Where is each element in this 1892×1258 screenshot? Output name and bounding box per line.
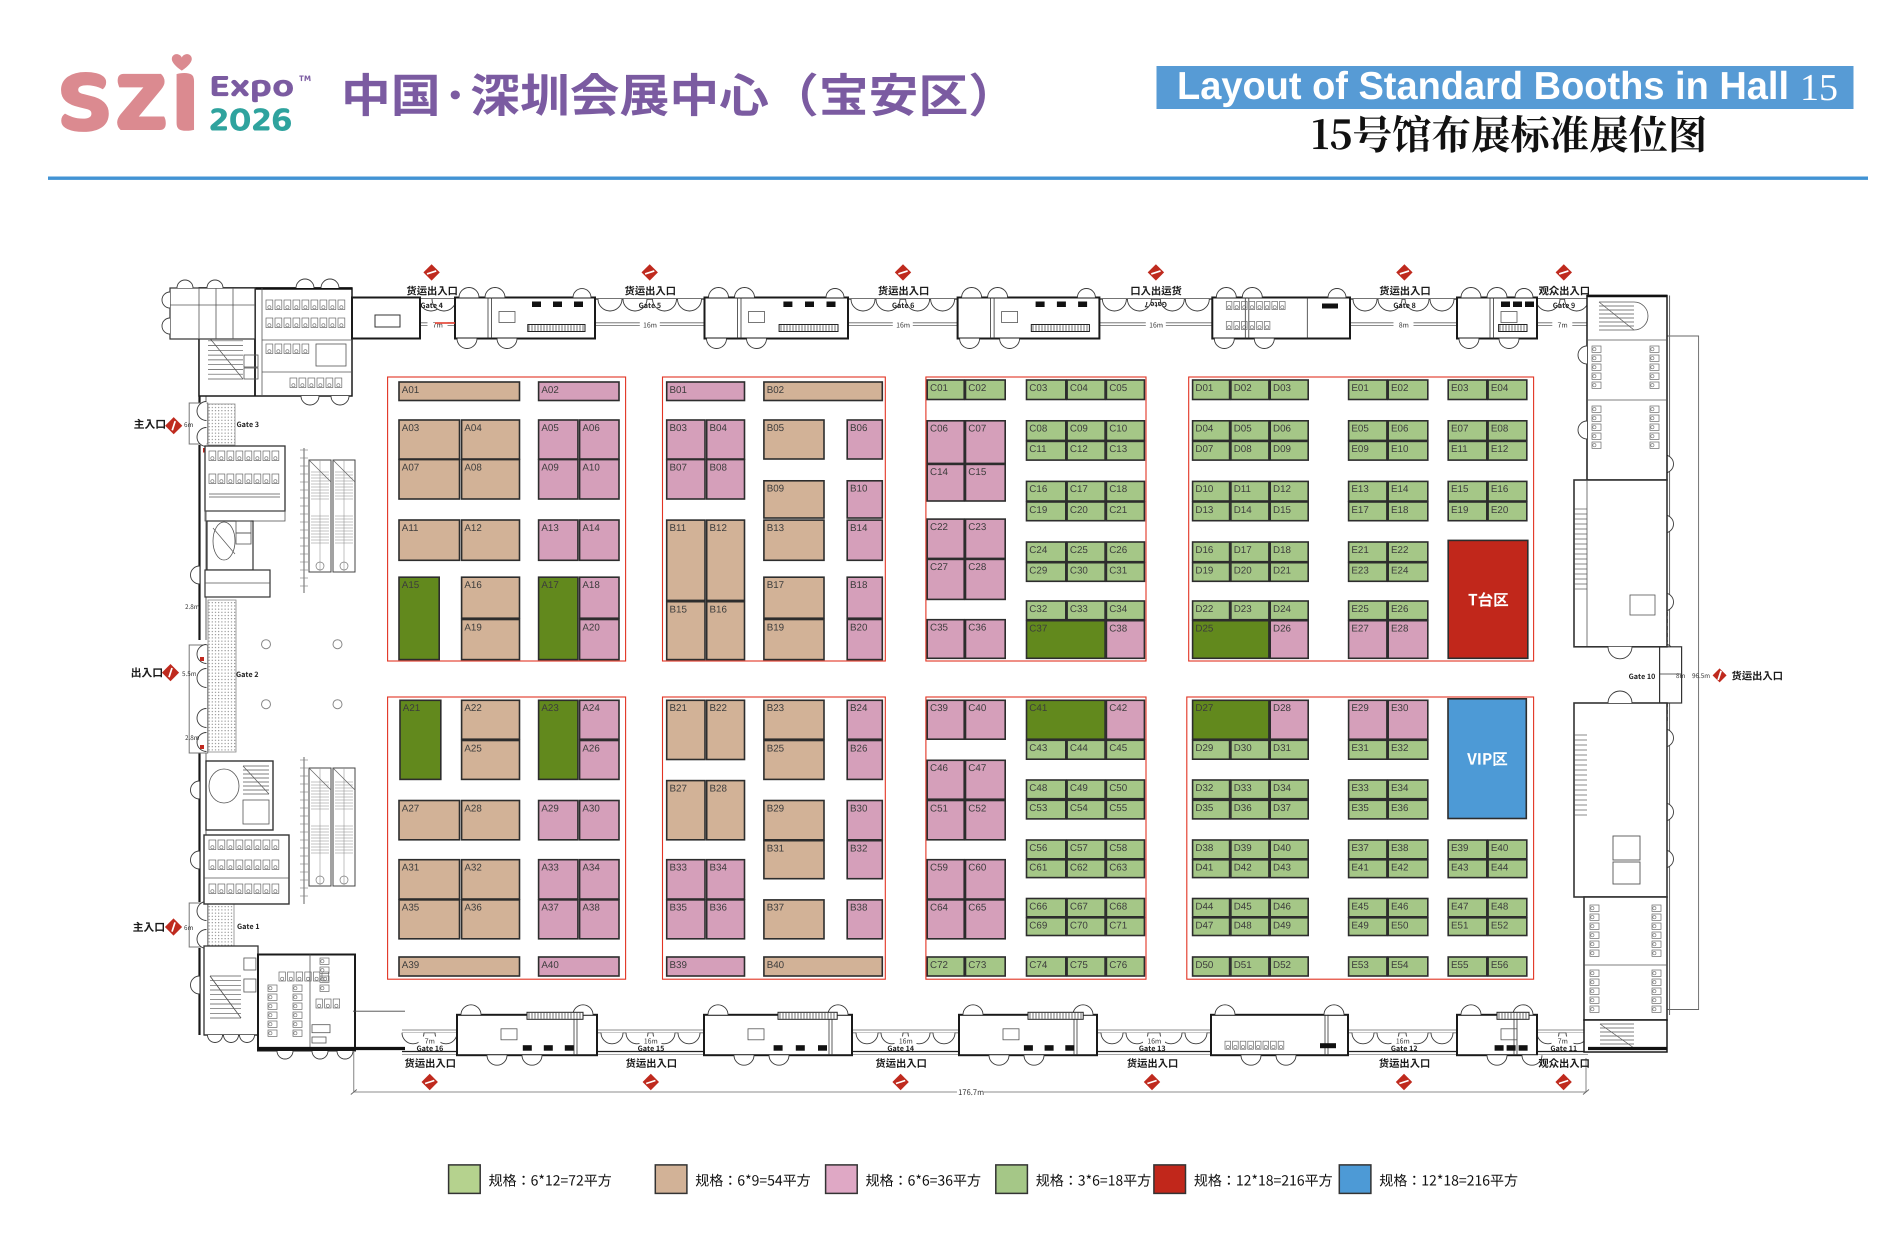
- svg-text:E10: E10: [1391, 444, 1409, 455]
- svg-text:B18: B18: [850, 580, 868, 591]
- svg-text:D13: D13: [1195, 505, 1214, 516]
- svg-text:C14: C14: [930, 467, 949, 478]
- svg-text:D30: D30: [1234, 743, 1253, 754]
- svg-text:D19: D19: [1195, 566, 1213, 577]
- svg-text:B08: B08: [710, 462, 728, 473]
- svg-text:C52: C52: [968, 803, 986, 814]
- svg-text:C75: C75: [1070, 960, 1089, 971]
- svg-text:D42: D42: [1234, 863, 1252, 874]
- svg-text:E07: E07: [1451, 424, 1468, 435]
- svg-text:D01: D01: [1195, 383, 1213, 394]
- svg-text:C51: C51: [930, 803, 948, 814]
- svg-text:C57: C57: [1070, 843, 1088, 854]
- svg-text:B04: B04: [710, 423, 728, 434]
- svg-text:D07: D07: [1195, 444, 1213, 455]
- svg-text:E39: E39: [1451, 843, 1468, 854]
- svg-text:B14: B14: [850, 523, 868, 534]
- svg-text:C07: C07: [968, 424, 986, 435]
- svg-text:C25: C25: [1070, 545, 1089, 556]
- svg-text:A26: A26: [582, 743, 600, 754]
- svg-text:D18: D18: [1273, 545, 1292, 556]
- svg-text:D29: D29: [1195, 743, 1213, 754]
- svg-text:D14: D14: [1234, 505, 1253, 516]
- svg-text:A18: A18: [582, 580, 600, 591]
- svg-text:D44: D44: [1195, 901, 1214, 912]
- svg-text:B39: B39: [670, 960, 687, 971]
- svg-text:E23: E23: [1351, 566, 1369, 577]
- svg-text:A08: A08: [464, 462, 482, 473]
- svg-text:B29: B29: [767, 803, 784, 814]
- svg-text:C22: C22: [930, 522, 948, 533]
- svg-text:B35: B35: [670, 903, 688, 914]
- svg-text:C49: C49: [1070, 783, 1088, 794]
- svg-text:C68: C68: [1109, 901, 1128, 912]
- svg-text:B36: B36: [710, 903, 728, 914]
- svg-text:B38: B38: [850, 903, 868, 914]
- svg-text:D25: D25: [1195, 624, 1214, 635]
- svg-text:C19: C19: [1029, 505, 1047, 516]
- svg-text:C06: C06: [930, 424, 949, 435]
- svg-text:E41: E41: [1351, 863, 1368, 874]
- svg-text:E29: E29: [1351, 703, 1368, 714]
- svg-text:E13: E13: [1351, 484, 1369, 495]
- svg-text:A22: A22: [464, 703, 481, 714]
- svg-text:D32: D32: [1195, 783, 1213, 794]
- svg-text:E46: E46: [1391, 901, 1409, 912]
- svg-text:C50: C50: [1109, 783, 1128, 794]
- svg-text:E38: E38: [1391, 843, 1409, 854]
- svg-text:A21: A21: [403, 703, 420, 714]
- svg-text:A35: A35: [402, 903, 420, 914]
- svg-text:C16: C16: [1029, 484, 1048, 495]
- svg-text:C55: C55: [1109, 803, 1128, 814]
- svg-text:C61: C61: [1029, 863, 1047, 874]
- svg-text:D51: D51: [1234, 960, 1252, 971]
- svg-text:C36: C36: [968, 623, 987, 634]
- svg-text:A03: A03: [402, 423, 420, 434]
- svg-text:C42: C42: [1109, 703, 1127, 714]
- svg-text:A09: A09: [541, 462, 558, 473]
- svg-text:A30: A30: [582, 803, 600, 814]
- svg-text:A02: A02: [541, 385, 558, 396]
- svg-text:C21: C21: [1109, 505, 1127, 516]
- svg-text:E06: E06: [1391, 424, 1409, 435]
- svg-text:B33: B33: [670, 863, 688, 874]
- svg-text:C43: C43: [1029, 743, 1048, 754]
- svg-text:B13: B13: [767, 523, 785, 534]
- svg-text:C37: C37: [1029, 624, 1047, 635]
- svg-text:D10: D10: [1195, 484, 1214, 495]
- svg-text:B28: B28: [710, 783, 728, 794]
- svg-text:E20: E20: [1491, 505, 1509, 516]
- svg-text:A06: A06: [582, 423, 600, 434]
- svg-text:D12: D12: [1273, 484, 1291, 495]
- svg-text:B17: B17: [767, 580, 784, 591]
- svg-text:E11: E11: [1451, 444, 1468, 455]
- svg-text:E22: E22: [1391, 545, 1408, 556]
- svg-text:A11: A11: [402, 523, 419, 534]
- svg-text:A16: A16: [464, 580, 482, 591]
- svg-text:D26: D26: [1273, 624, 1292, 635]
- svg-text:D50: D50: [1195, 960, 1214, 971]
- svg-text:E55: E55: [1451, 960, 1469, 971]
- svg-text:E34: E34: [1391, 783, 1409, 794]
- svg-text:C54: C54: [1070, 803, 1089, 814]
- svg-text:E31: E31: [1351, 743, 1368, 754]
- svg-text:A27: A27: [402, 803, 419, 814]
- svg-text:E08: E08: [1491, 424, 1509, 435]
- svg-text:D04: D04: [1195, 424, 1214, 435]
- svg-text:C27: C27: [930, 562, 948, 573]
- svg-text:C04: C04: [1070, 383, 1089, 394]
- svg-text:D06: D06: [1273, 424, 1292, 435]
- svg-text:E37: E37: [1351, 843, 1368, 854]
- svg-text:E36: E36: [1391, 803, 1409, 814]
- svg-text:C35: C35: [930, 623, 949, 634]
- svg-text:C09: C09: [1070, 424, 1088, 435]
- svg-text:C39: C39: [930, 703, 948, 714]
- svg-text:Layout of Standard Booths in H: Layout of Standard Booths in Hall: [1177, 65, 1789, 108]
- svg-text:B21: B21: [670, 703, 687, 714]
- svg-text:A14: A14: [582, 523, 600, 534]
- svg-text:C63: C63: [1109, 863, 1128, 874]
- svg-text:D36: D36: [1234, 803, 1253, 814]
- svg-text:E43: E43: [1451, 863, 1469, 874]
- svg-text:B12: B12: [710, 523, 727, 534]
- svg-text:D16: D16: [1195, 545, 1214, 556]
- svg-text:C24: C24: [1029, 545, 1048, 556]
- svg-text:E54: E54: [1391, 960, 1409, 971]
- svg-text:B32: B32: [850, 844, 867, 855]
- svg-text:E01: E01: [1351, 383, 1368, 394]
- svg-text:C03: C03: [1029, 383, 1048, 394]
- svg-text:D31: D31: [1273, 743, 1291, 754]
- svg-text:C69: C69: [1029, 921, 1047, 932]
- svg-text:E25: E25: [1351, 604, 1369, 615]
- svg-text:A15: A15: [402, 580, 420, 591]
- svg-text:C46: C46: [930, 763, 949, 774]
- svg-text:B01: B01: [670, 385, 687, 396]
- svg-text:A05: A05: [541, 423, 559, 434]
- svg-text:E04: E04: [1491, 383, 1509, 394]
- svg-text:E52: E52: [1491, 921, 1508, 932]
- svg-text:C70: C70: [1070, 921, 1089, 932]
- svg-text:D48: D48: [1234, 921, 1253, 932]
- svg-text:E49: E49: [1351, 921, 1368, 932]
- svg-text:E56: E56: [1491, 960, 1509, 971]
- svg-text:A01: A01: [402, 385, 419, 396]
- svg-text:E12: E12: [1491, 444, 1508, 455]
- svg-text:E47: E47: [1451, 901, 1468, 912]
- svg-text:A12: A12: [464, 523, 481, 534]
- svg-text:D02: D02: [1234, 383, 1252, 394]
- svg-text:D03: D03: [1273, 383, 1292, 394]
- svg-text:B27: B27: [670, 783, 687, 794]
- svg-text:E16: E16: [1491, 484, 1509, 495]
- svg-text:C34: C34: [1109, 604, 1128, 615]
- svg-text:A36: A36: [464, 903, 482, 914]
- svg-text:C40: C40: [968, 703, 987, 714]
- svg-text:D45: D45: [1234, 901, 1253, 912]
- svg-text:C76: C76: [1109, 960, 1128, 971]
- svg-text:B30: B30: [850, 803, 868, 814]
- svg-text:C45: C45: [1109, 743, 1128, 754]
- svg-text:C62: C62: [1070, 863, 1088, 874]
- svg-text:D37: D37: [1273, 803, 1291, 814]
- svg-text:B16: B16: [710, 605, 728, 616]
- svg-text:C66: C66: [1029, 901, 1048, 912]
- svg-text:C33: C33: [1070, 604, 1089, 615]
- svg-text:D05: D05: [1234, 424, 1253, 435]
- svg-text:D47: D47: [1195, 921, 1213, 932]
- svg-text:E24: E24: [1391, 566, 1409, 577]
- svg-text:E28: E28: [1391, 624, 1409, 635]
- svg-text:C17: C17: [1070, 484, 1088, 495]
- svg-text:C26: C26: [1109, 545, 1128, 556]
- svg-text:D09: D09: [1273, 444, 1291, 455]
- svg-text:D33: D33: [1234, 783, 1253, 794]
- svg-text:D20: D20: [1234, 566, 1253, 577]
- svg-text:C12: C12: [1070, 444, 1088, 455]
- svg-text:E42: E42: [1391, 863, 1408, 874]
- svg-text:D46: D46: [1273, 901, 1292, 912]
- svg-text:E35: E35: [1351, 803, 1369, 814]
- svg-text:A25: A25: [464, 743, 482, 754]
- svg-text:C10: C10: [1109, 424, 1128, 435]
- svg-text:C29: C29: [1029, 566, 1047, 577]
- svg-text:B31: B31: [767, 844, 784, 855]
- svg-text:D39: D39: [1234, 843, 1252, 854]
- svg-text:B02: B02: [767, 385, 784, 396]
- svg-text:B24: B24: [850, 703, 868, 714]
- svg-text:D08: D08: [1234, 444, 1253, 455]
- svg-text:E32: E32: [1391, 743, 1408, 754]
- svg-text:A34: A34: [582, 863, 600, 874]
- svg-text:D43: D43: [1273, 863, 1292, 874]
- svg-text:A37: A37: [541, 903, 558, 914]
- svg-text:D17: D17: [1234, 545, 1252, 556]
- svg-text:B03: B03: [670, 423, 688, 434]
- svg-text:E02: E02: [1391, 383, 1408, 394]
- svg-text:C71: C71: [1109, 921, 1127, 932]
- svg-text:C02: C02: [968, 383, 986, 394]
- svg-text:D40: D40: [1273, 843, 1292, 854]
- svg-text:A40: A40: [541, 960, 559, 971]
- svg-text:A17: A17: [541, 580, 558, 591]
- svg-text:C13: C13: [1109, 444, 1128, 455]
- svg-text:B40: B40: [767, 960, 785, 971]
- svg-text:A20: A20: [582, 622, 600, 633]
- svg-text:E15: E15: [1451, 484, 1469, 495]
- svg-text:E18: E18: [1391, 505, 1409, 516]
- svg-text:C48: C48: [1029, 783, 1048, 794]
- svg-text:C47: C47: [968, 763, 986, 774]
- svg-text:D15: D15: [1273, 505, 1292, 516]
- svg-text:B07: B07: [670, 462, 687, 473]
- svg-text:D34: D34: [1273, 783, 1292, 794]
- svg-text:E19: E19: [1451, 505, 1468, 516]
- svg-text:E50: E50: [1391, 921, 1409, 932]
- svg-text:B09: B09: [767, 484, 784, 495]
- svg-text:C44: C44: [1070, 743, 1089, 754]
- svg-text:E27: E27: [1351, 624, 1368, 635]
- svg-text:A07: A07: [402, 462, 419, 473]
- svg-text:C20: C20: [1070, 505, 1089, 516]
- svg-text:B06: B06: [850, 423, 868, 434]
- svg-text:C56: C56: [1029, 843, 1048, 854]
- svg-text:B26: B26: [850, 743, 868, 754]
- svg-text:D11: D11: [1234, 484, 1251, 495]
- svg-text:C23: C23: [968, 522, 987, 533]
- svg-text:D23: D23: [1234, 604, 1253, 615]
- svg-text:E45: E45: [1351, 901, 1369, 912]
- svg-text:C28: C28: [968, 562, 987, 573]
- svg-text:A28: A28: [464, 803, 482, 814]
- svg-text:C60: C60: [968, 863, 987, 874]
- svg-text:B23: B23: [767, 703, 785, 714]
- svg-text:A39: A39: [402, 960, 419, 971]
- svg-text:A29: A29: [541, 803, 558, 814]
- svg-text:B22: B22: [710, 703, 727, 714]
- svg-text:C53: C53: [1029, 803, 1048, 814]
- svg-text:C64: C64: [930, 903, 949, 914]
- svg-text:A23: A23: [541, 703, 559, 714]
- svg-text:E51: E51: [1451, 921, 1468, 932]
- svg-text:E17: E17: [1351, 505, 1368, 516]
- svg-text:C73: C73: [968, 960, 987, 971]
- svg-text:D41: D41: [1195, 863, 1213, 874]
- svg-text:A38: A38: [582, 903, 600, 914]
- svg-text:C01: C01: [930, 383, 948, 394]
- svg-text:A31: A31: [402, 863, 419, 874]
- svg-text:A32: A32: [464, 863, 481, 874]
- svg-text:C18: C18: [1109, 484, 1128, 495]
- svg-text:B05: B05: [767, 423, 785, 434]
- svg-text:D22: D22: [1195, 604, 1213, 615]
- svg-text:E21: E21: [1351, 545, 1368, 556]
- svg-text:C41: C41: [1029, 703, 1047, 714]
- svg-text:C72: C72: [930, 960, 948, 971]
- svg-text:E33: E33: [1351, 783, 1369, 794]
- svg-text:E40: E40: [1491, 843, 1509, 854]
- svg-text:E53: E53: [1351, 960, 1369, 971]
- svg-text:C30: C30: [1070, 566, 1089, 577]
- svg-text:C05: C05: [1109, 383, 1128, 394]
- svg-text:D52: D52: [1273, 960, 1291, 971]
- svg-text:D27: D27: [1195, 703, 1213, 714]
- svg-text:C32: C32: [1029, 604, 1047, 615]
- svg-text:A19: A19: [464, 622, 481, 633]
- svg-text:D35: D35: [1195, 803, 1214, 814]
- svg-text:D38: D38: [1195, 843, 1214, 854]
- svg-text:E44: E44: [1491, 863, 1509, 874]
- svg-text:C67: C67: [1070, 901, 1088, 912]
- svg-text:E09: E09: [1351, 444, 1368, 455]
- svg-text:A33: A33: [541, 863, 559, 874]
- svg-text:A24: A24: [582, 703, 600, 714]
- svg-text:15: 15: [1800, 67, 1838, 109]
- svg-text:B34: B34: [710, 863, 728, 874]
- svg-text:E48: E48: [1491, 901, 1509, 912]
- svg-text:B20: B20: [850, 622, 868, 633]
- svg-text:A13: A13: [541, 523, 559, 534]
- svg-text:B37: B37: [767, 903, 784, 914]
- svg-text:A10: A10: [582, 462, 600, 473]
- svg-text:E30: E30: [1391, 703, 1409, 714]
- svg-text:C65: C65: [968, 903, 987, 914]
- svg-text:B19: B19: [767, 622, 784, 633]
- svg-text:B15: B15: [670, 605, 688, 616]
- svg-text:C11: C11: [1029, 444, 1046, 455]
- svg-text:C15: C15: [968, 467, 987, 478]
- svg-text:E05: E05: [1351, 424, 1369, 435]
- svg-text:B10: B10: [850, 484, 868, 495]
- svg-text:D28: D28: [1273, 703, 1292, 714]
- svg-text:E03: E03: [1451, 383, 1469, 394]
- svg-text:C08: C08: [1029, 424, 1048, 435]
- svg-text:D21: D21: [1273, 566, 1291, 577]
- svg-text:B11: B11: [670, 523, 687, 534]
- svg-text:C58: C58: [1109, 843, 1128, 854]
- svg-text:E14: E14: [1391, 484, 1409, 495]
- svg-text:C59: C59: [930, 863, 948, 874]
- svg-text:C38: C38: [1109, 624, 1128, 635]
- svg-text:E26: E26: [1391, 604, 1409, 615]
- svg-text:D24: D24: [1273, 604, 1292, 615]
- svg-text:B25: B25: [767, 743, 785, 754]
- svg-text:C31: C31: [1109, 566, 1127, 577]
- svg-text:A04: A04: [464, 423, 482, 434]
- svg-text:D49: D49: [1273, 921, 1291, 932]
- svg-text:C74: C74: [1029, 960, 1048, 971]
